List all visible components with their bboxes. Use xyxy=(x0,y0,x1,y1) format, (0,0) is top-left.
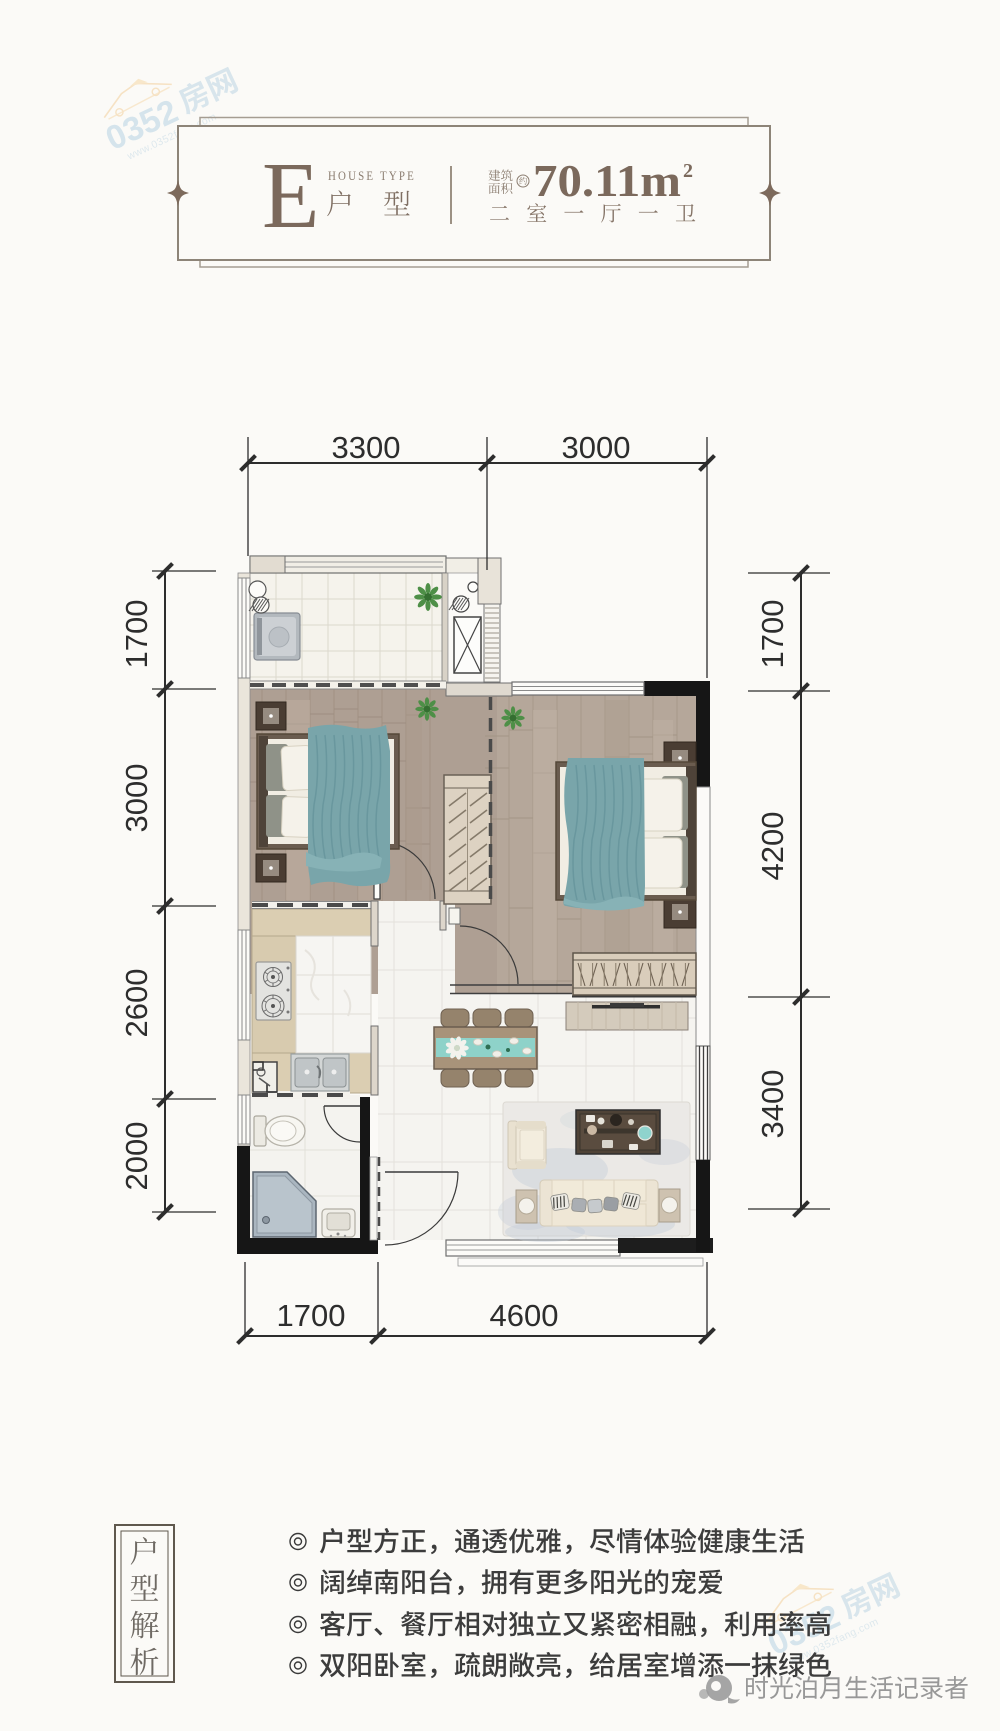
svg-text:E: E xyxy=(262,144,319,248)
svg-text:HOUSE TYPE: HOUSE TYPE xyxy=(328,169,416,183)
svg-text:4600: 4600 xyxy=(490,1298,559,1333)
svg-text:3400: 3400 xyxy=(755,1070,790,1139)
svg-text:2: 2 xyxy=(683,160,693,182)
svg-text:3000: 3000 xyxy=(562,430,631,465)
svg-text:1700: 1700 xyxy=(277,1298,346,1333)
svg-text:2000: 2000 xyxy=(119,1122,154,1191)
svg-text:3300: 3300 xyxy=(332,430,401,465)
svg-text:1700: 1700 xyxy=(119,600,154,669)
svg-text:4200: 4200 xyxy=(755,812,790,881)
svg-text:70.11m: 70.11m xyxy=(533,155,681,206)
svg-text:1700: 1700 xyxy=(755,600,790,669)
svg-text:2600: 2600 xyxy=(119,969,154,1038)
svg-text:3000: 3000 xyxy=(119,764,154,833)
